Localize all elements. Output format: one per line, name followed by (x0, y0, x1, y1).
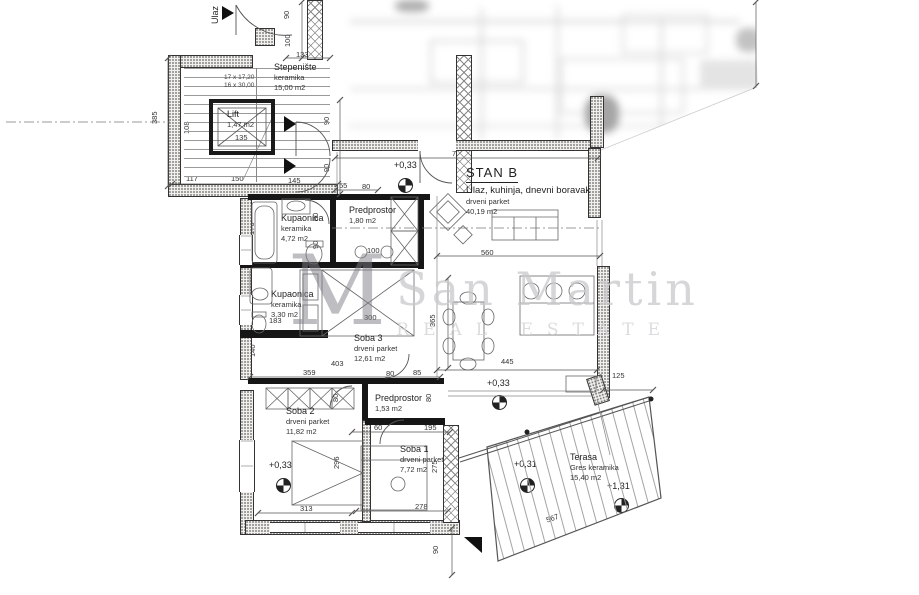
room-label-predprostor-2: Predprostor 1,53 m2 (375, 393, 422, 414)
dining-table (443, 292, 494, 370)
room-label-stepeniste: Stepenište keramika 15,00 m2 (274, 62, 317, 92)
unit-label-stan-b: STAN B Ulaz, kuhinja, dnevni boravak drv… (466, 163, 590, 216)
floor-plan-canvas: Ulaz Stepenište keramika 15,00 m2 17 x 1… (0, 0, 919, 595)
bed-soba2 (292, 441, 363, 505)
room-label-predprostor-1: Predprostor 1,80 m2 (349, 205, 396, 226)
bed-soba3 (300, 270, 414, 336)
room-label-lift: Lift 1,47 m2 (227, 109, 254, 130)
stair-note: 17 x 17,20 16 x 30,00 (224, 74, 254, 91)
room-label-kupaonica-2: Kupaonica keramika 3,30 m2 (271, 289, 314, 319)
room-label-ulaz: Ulaz (210, 6, 221, 24)
room-label-soba-3: Soba 3 drveni parket 12,61 m2 (354, 333, 397, 363)
plan-vector-layer (0, 0, 919, 595)
room-label-soba-2: Soba 2 drveni parket 11,82 m2 (286, 406, 329, 436)
room-label-kupaonica-1: Kupaonica keramika 4,72 m2 (281, 213, 324, 243)
room-label-terasa: Terasa Gres keramika 15,40 m2 (570, 452, 619, 482)
kitchen-counter (520, 276, 596, 392)
room-label-soba-1: Soba 1 drveni parket 7,72 m2 (400, 444, 443, 474)
terrace-graphics (459, 397, 661, 562)
door-arcs (236, 5, 452, 444)
